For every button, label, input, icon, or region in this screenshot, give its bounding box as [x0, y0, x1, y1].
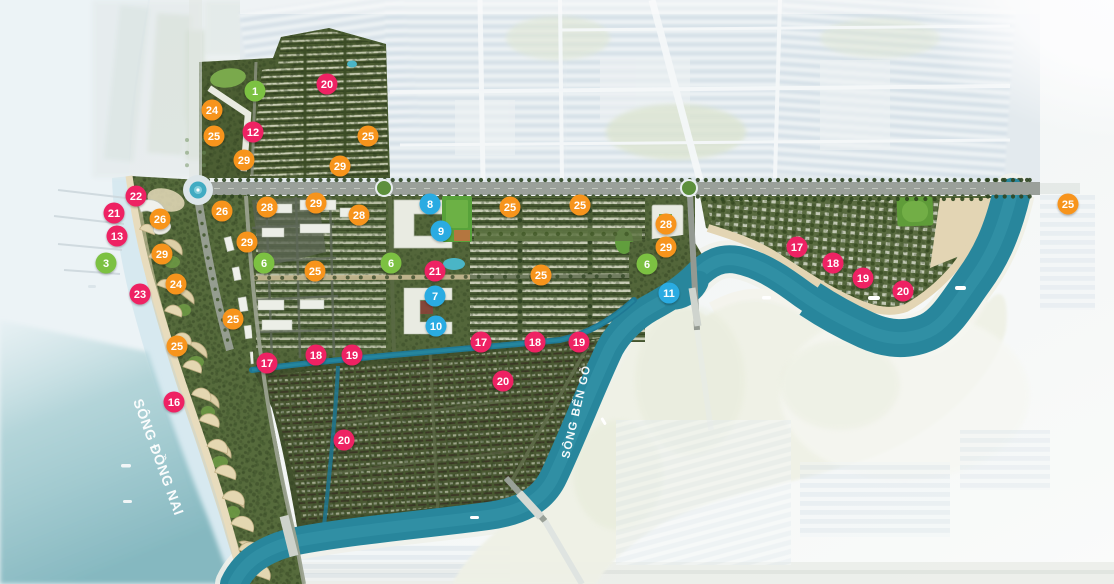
svg-text:28: 28	[660, 219, 672, 231]
svg-text:19: 19	[346, 350, 358, 362]
svg-text:20: 20	[321, 79, 333, 91]
svg-text:6: 6	[261, 258, 267, 270]
svg-text:21: 21	[108, 208, 120, 220]
svg-text:29: 29	[156, 249, 168, 261]
svg-text:12: 12	[247, 127, 259, 139]
svg-text:17: 17	[791, 242, 803, 254]
svg-text:20: 20	[897, 286, 909, 298]
svg-text:25: 25	[1062, 199, 1074, 211]
svg-text:25: 25	[227, 314, 239, 326]
svg-text:24: 24	[170, 279, 183, 291]
svg-text:6: 6	[644, 259, 650, 271]
svg-text:24: 24	[206, 105, 219, 117]
svg-text:19: 19	[573, 337, 585, 349]
svg-text:29: 29	[660, 242, 672, 254]
svg-text:29: 29	[310, 198, 322, 210]
svg-text:20: 20	[338, 435, 350, 447]
svg-text:3: 3	[103, 258, 109, 270]
svg-text:23: 23	[134, 289, 146, 301]
svg-text:25: 25	[574, 200, 586, 212]
svg-text:18: 18	[310, 350, 322, 362]
svg-text:1: 1	[252, 86, 258, 98]
svg-text:21: 21	[429, 266, 441, 278]
svg-text:29: 29	[334, 161, 346, 173]
svg-text:10: 10	[430, 321, 442, 333]
svg-text:25: 25	[171, 341, 183, 353]
svg-text:25: 25	[535, 270, 547, 282]
svg-text:8: 8	[427, 199, 433, 211]
svg-text:25: 25	[362, 131, 374, 143]
svg-text:22: 22	[130, 191, 142, 203]
svg-text:18: 18	[827, 258, 839, 270]
svg-text:19: 19	[857, 273, 869, 285]
svg-text:29: 29	[238, 155, 250, 167]
svg-text:28: 28	[261, 202, 273, 214]
svg-text:20: 20	[497, 376, 509, 388]
svg-text:11: 11	[663, 288, 675, 300]
svg-text:17: 17	[475, 337, 487, 349]
svg-text:7: 7	[432, 291, 438, 303]
svg-text:25: 25	[309, 266, 321, 278]
svg-text:25: 25	[504, 202, 516, 214]
svg-text:13: 13	[111, 231, 123, 243]
svg-text:16: 16	[168, 397, 180, 409]
svg-text:29: 29	[241, 237, 253, 249]
svg-text:6: 6	[388, 258, 394, 270]
svg-text:18: 18	[529, 337, 541, 349]
svg-text:28: 28	[353, 210, 365, 222]
svg-text:9: 9	[438, 226, 444, 238]
svg-text:26: 26	[154, 214, 166, 226]
svg-text:17: 17	[261, 358, 273, 370]
svg-text:26: 26	[216, 206, 228, 218]
svg-text:25: 25	[208, 131, 220, 143]
